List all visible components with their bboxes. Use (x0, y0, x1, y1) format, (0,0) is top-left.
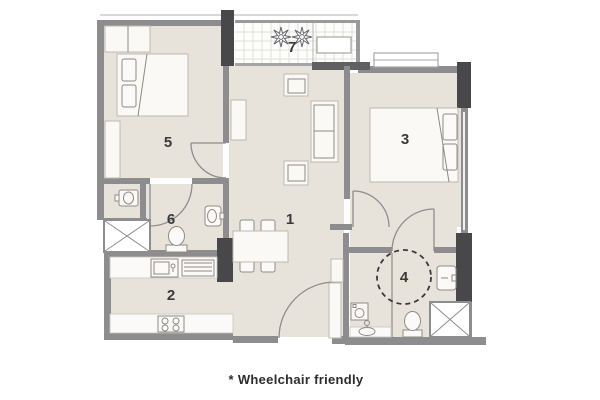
balcony-railing-right (356, 20, 360, 66)
dining-table-symbol (233, 231, 288, 262)
wall-bath6-living (223, 178, 229, 238)
room-label-3: 3 (401, 131, 409, 148)
pillow-symbol (443, 114, 457, 140)
planter-symbol (317, 37, 351, 53)
wall-bottom-right (345, 337, 486, 345)
kitchen-sink-symbol (151, 259, 178, 277)
toilet-symbol (403, 312, 422, 338)
wall-bedroom5-living-upper (223, 66, 229, 143)
wall-bottom-kitchen (104, 333, 233, 340)
washbasin-symbol (437, 266, 456, 290)
shaft-x-symbol (430, 302, 470, 337)
wall-bathroom4-top-left (345, 247, 392, 253)
room-label-2: 2 (167, 287, 175, 304)
partition-bathroom4 (391, 253, 393, 337)
balcony (235, 20, 360, 66)
room-label-5: 5 (164, 134, 172, 151)
chair-symbol (240, 220, 254, 232)
pillow-symbol (122, 59, 136, 81)
room-label-1: 1 (286, 211, 294, 228)
balcony-railing-top (235, 20, 360, 23)
floor-plan-page: 1 2 3 4 5 6 7 * Wheelchair friendly (0, 0, 600, 400)
wall-bottom-entrance-left (233, 336, 278, 343)
window-glass-line (463, 112, 465, 230)
shelf-symbol (105, 121, 120, 178)
wall-bathroom4-top-right (434, 247, 456, 253)
wall-stub-bedroom3-door (330, 224, 352, 230)
cooktop-symbol (158, 316, 184, 332)
sofa-symbol (311, 101, 338, 162)
wall-left-nook (97, 184, 104, 220)
sliding-door-balcony (235, 63, 312, 66)
pillow-symbol (122, 85, 136, 107)
bedroom-3-furniture (370, 108, 458, 182)
room-label-7: 7 (288, 39, 296, 56)
entrance-door-leaf (329, 283, 341, 338)
wall-nook-stub (140, 184, 146, 218)
column-kitchen (217, 238, 233, 282)
wheelchair-friendly-caption: * Wheelchair friendly (229, 372, 364, 387)
bed-symbol (370, 108, 458, 182)
wall-living-bedroom3 (344, 66, 350, 199)
room-label-6: 6 (167, 211, 175, 228)
column-top-left (221, 10, 234, 66)
washing-machine-symbol (351, 303, 368, 320)
tv-console-symbol (231, 100, 246, 140)
shaft-x-symbol (104, 220, 150, 252)
cabinet-symbol (331, 259, 343, 282)
column-mid-right (456, 233, 472, 302)
floor-plan-drawing: 1 2 3 4 5 6 7 * Wheelchair friendly (0, 0, 600, 400)
windows (374, 53, 438, 67)
wall-top (97, 20, 222, 26)
wall-left-upper (97, 20, 104, 184)
bed-symbol (117, 54, 188, 116)
wall-balcony-living (312, 62, 370, 70)
room-label-4: 4 (400, 269, 409, 286)
drying-rack-symbol (182, 260, 214, 276)
chair-symbol (261, 220, 275, 232)
wall-bedroom5-bath6-left (104, 178, 150, 184)
armchair-symbol (284, 161, 308, 185)
armchair-symbol (284, 74, 308, 96)
washbasin-symbol (205, 206, 224, 226)
column-top-right (457, 62, 471, 108)
